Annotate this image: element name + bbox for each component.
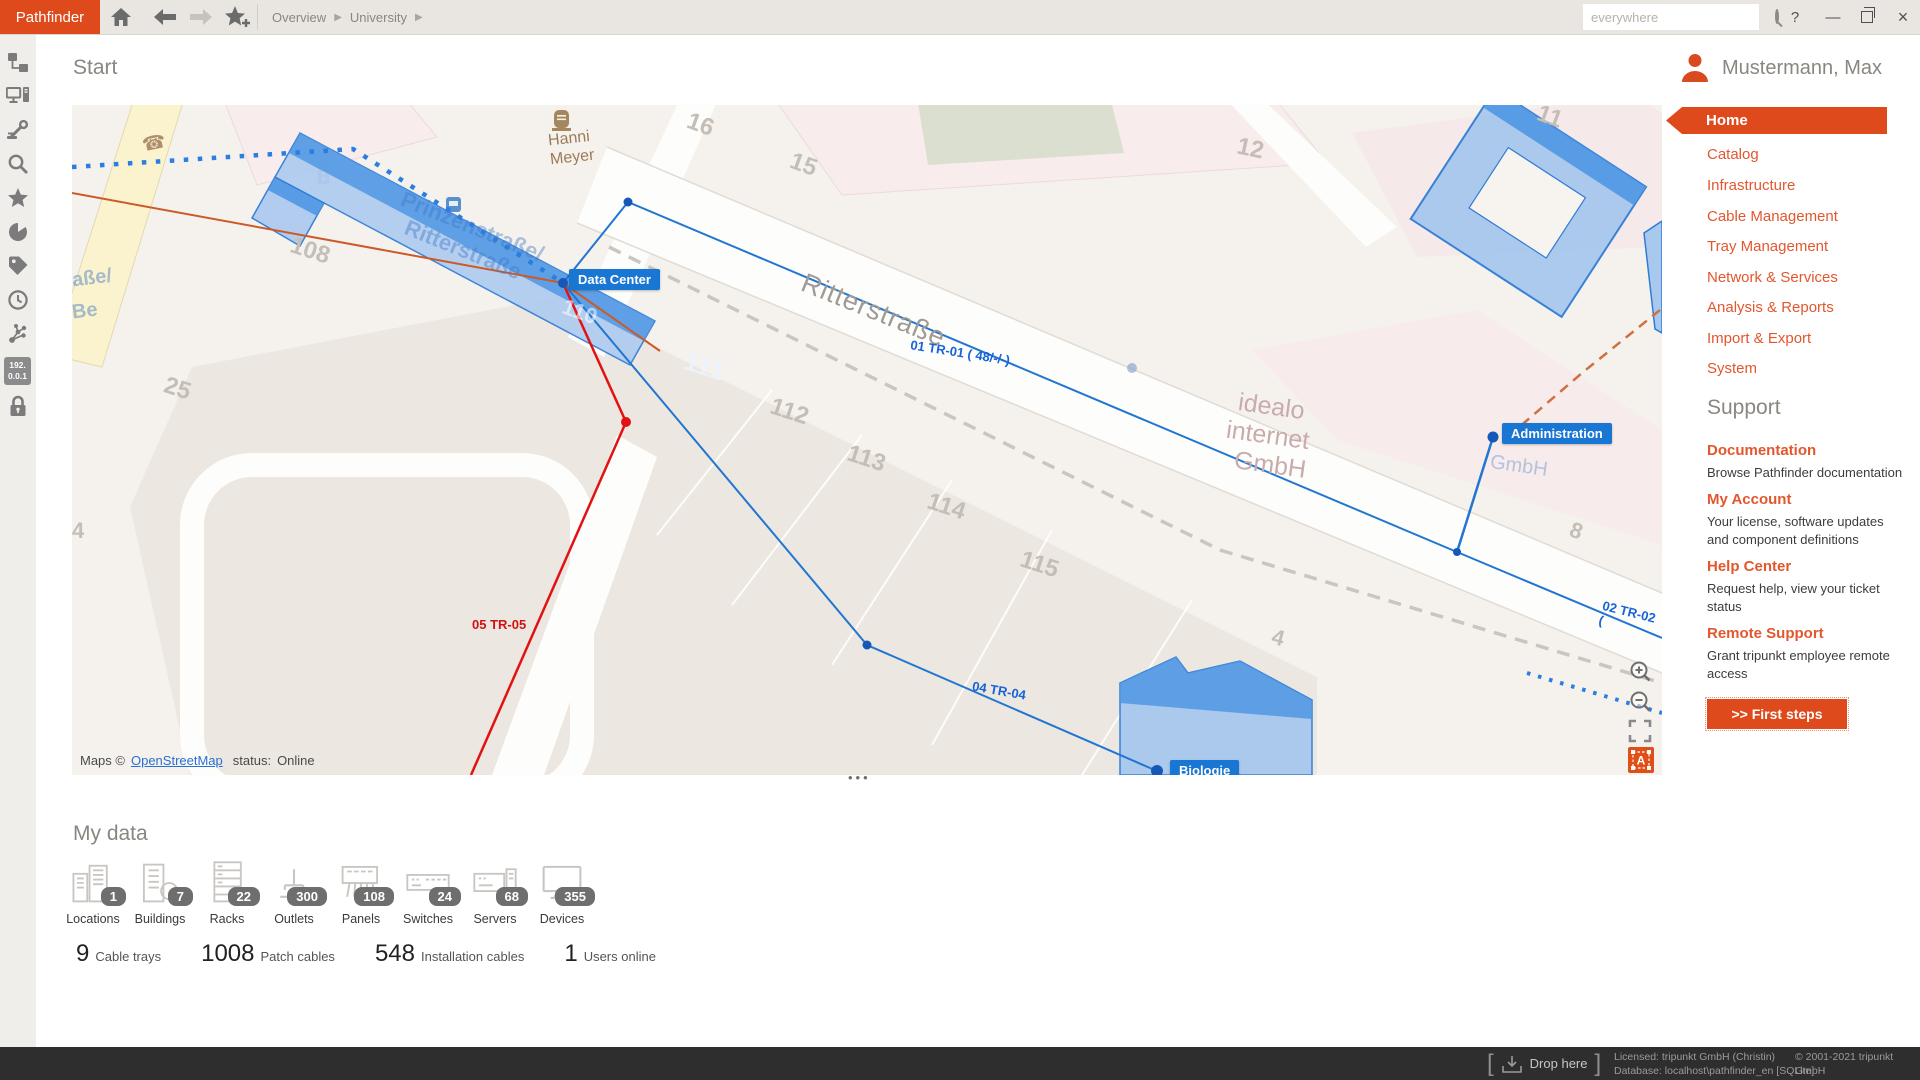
support-my-account[interactable]: My Account: [1707, 491, 1791, 508]
support-my-account-desc: Your license, software updates and compo…: [1707, 513, 1907, 549]
zoom-out-icon[interactable]: [1628, 689, 1656, 717]
status-value: Online: [277, 753, 315, 768]
menu-item-network-services[interactable]: Network & Services: [1707, 263, 1838, 293]
my-data-stats: 9Cable trays 1008Patch cables 548Install…: [76, 940, 656, 968]
menu-item-tray-management[interactable]: Tray Management: [1707, 232, 1828, 262]
my-data-title: My data: [73, 822, 148, 846]
support-remote-support[interactable]: Remote Support: [1707, 625, 1824, 642]
drop-here-label: Drop here: [1530, 1056, 1588, 1071]
support-documentation[interactable]: Documentation: [1707, 442, 1816, 459]
poi-dot: [1127, 363, 1137, 373]
poi-label-hanni-meyer: HanniMeyer: [547, 127, 595, 169]
count-badge: 355: [555, 887, 595, 906]
map-canvas[interactable]: ☎: [72, 105, 1662, 775]
app-logo[interactable]: Pathfinder: [0, 0, 100, 34]
my-data-switches[interactable]: 24 Switches: [395, 860, 461, 926]
my-data-outlets[interactable]: 300 Outlets: [261, 860, 327, 926]
add-favorite-icon[interactable]: [222, 5, 254, 29]
my-data-servers[interactable]: 68 Servers: [462, 860, 528, 926]
stat-users-online: 1Users online: [564, 940, 656, 968]
svg-text:A: A: [1637, 754, 1646, 768]
version-info: © 2001-2021 tripunkt GmbH v3.3.2.459 (64…: [1795, 1050, 1920, 1080]
tree-icon[interactable]: [0, 45, 36, 79]
menu-item-cable-management[interactable]: Cable Management: [1707, 202, 1838, 232]
stat-cable-trays: 9Cable trays: [76, 940, 161, 968]
tools-icon[interactable]: [0, 113, 36, 147]
openstreetmap-link[interactable]: OpenStreetMap: [131, 753, 223, 768]
poi-label-idealo: idealointernetGmbH: [1228, 388, 1316, 485]
bracket-right: ]: [1594, 1050, 1601, 1078]
forward-icon[interactable]: [188, 5, 214, 29]
status-label: status:: [233, 753, 271, 768]
license-info: Licensed: tripunkt GmbH (Christin) Datab…: [1614, 1050, 1814, 1078]
home-icon[interactable]: [108, 5, 134, 29]
breadcrumb: Overview ▶ University ▶: [272, 0, 423, 34]
download-icon: [1501, 1054, 1523, 1074]
breadcrumb-university[interactable]: University: [350, 10, 407, 25]
favorites-icon[interactable]: [0, 181, 36, 215]
search-input[interactable]: [1583, 6, 1775, 28]
ip-address-icon[interactable]: 192. 0.0.1: [4, 357, 31, 385]
drop-here-zone[interactable]: [ Drop here ]: [1487, 1047, 1601, 1080]
search-icon[interactable]: [1775, 9, 1779, 24]
licensed-line: Licensed: tripunkt GmbH (Christin): [1614, 1050, 1814, 1064]
map-view[interactable]: ☎: [72, 105, 1662, 775]
user-row[interactable]: Mustermann, Max: [1680, 52, 1882, 84]
support-help-center-desc: Request help, view your ticket status: [1707, 580, 1907, 616]
stat-patch-cables: 1008Patch cables: [201, 940, 335, 968]
map-badge-data-center[interactable]: Data Center: [569, 269, 660, 290]
map-badge-administration[interactable]: Administration: [1502, 423, 1612, 444]
street-label-edge2: Be: [72, 299, 99, 325]
stat-installation-cables: 548Installation cables: [375, 940, 524, 968]
menu-item-catalog[interactable]: Catalog: [1707, 140, 1759, 170]
my-data-racks[interactable]: 22 Racks: [194, 860, 260, 926]
help-button[interactable]: ?: [1780, 0, 1810, 34]
topology-icon[interactable]: [0, 317, 36, 351]
fullscreen-icon[interactable]: [1628, 719, 1656, 747]
toolbar-separator: [257, 4, 258, 30]
menu-item-home[interactable]: Home: [1666, 107, 1887, 134]
count-badge: 22: [228, 887, 260, 906]
zoom-in-icon[interactable]: [1628, 659, 1656, 687]
count-badge: 7: [168, 887, 193, 906]
global-search: [1583, 4, 1759, 30]
cable-label-tr05[interactable]: 05 TR-05: [472, 617, 526, 632]
status-bar: [ Drop here ] Licensed: tripunkt GmbH (C…: [0, 1047, 1920, 1080]
my-data-buildings[interactable]: 7 Buildings: [127, 860, 193, 926]
house-number: 12: [1234, 133, 1266, 166]
map-road-secondary: [72, 105, 184, 367]
breadcrumb-arrow-icon: ▶: [415, 12, 423, 23]
pie-chart-icon[interactable]: [0, 215, 36, 249]
map-attribution: Maps © OpenStreetMap status: Online: [80, 753, 315, 768]
count-badge: 108: [354, 887, 394, 906]
my-data-panels[interactable]: 108 Panels: [328, 860, 394, 926]
menu-item-system[interactable]: System: [1707, 354, 1757, 384]
memorial-icon: [552, 110, 571, 131]
app-window: Pathfinder Overview ▶ University ▶ ? — ×: [0, 0, 1920, 1080]
left-toolbar: 192. 0.0.1: [0, 35, 36, 1047]
my-data-locations[interactable]: 1 Locations: [60, 860, 126, 926]
support-title: Support: [1707, 396, 1781, 420]
menu-item-analysis-reports[interactable]: Analysis & Reports: [1707, 293, 1834, 323]
user-icon: [1680, 52, 1710, 84]
house-number: 4: [72, 518, 84, 544]
lock-icon[interactable]: [0, 389, 36, 423]
count-badge: 1: [101, 887, 126, 906]
breadcrumb-arrow-icon: ▶: [334, 12, 342, 23]
support-remote-support-desc: Grant tripunkt employee remote access: [1707, 647, 1907, 683]
count-badge: 300: [287, 887, 327, 906]
map-badge-biologie[interactable]: Biologie: [1170, 760, 1239, 775]
count-badge: 68: [496, 887, 528, 906]
my-data-devices[interactable]: 355 Devices: [529, 860, 595, 926]
close-icon[interactable]: ×: [1888, 0, 1918, 34]
panel-splitter-handle[interactable]: •••: [848, 770, 871, 785]
menu-item-import-export[interactable]: Import & Export: [1707, 324, 1811, 354]
cable-node-red[interactable]: [621, 417, 631, 427]
menu-item-infrastructure[interactable]: Infrastructure: [1707, 171, 1795, 201]
count-badge: 24: [429, 887, 461, 906]
database-line: Database: localhost\pathfinder_en [SQLit…: [1614, 1064, 1814, 1078]
support-help-center[interactable]: Help Center: [1707, 558, 1791, 575]
search-icon[interactable]: [0, 147, 36, 181]
copyright-line: © 2001-2021 tripunkt GmbH: [1795, 1050, 1920, 1078]
restore-icon[interactable]: [1852, 0, 1882, 34]
workstation-icon[interactable]: [0, 79, 36, 113]
bracket-left: [: [1487, 1050, 1494, 1078]
back-icon[interactable]: [152, 5, 178, 29]
tags-icon[interactable]: [0, 249, 36, 283]
top-bar: Pathfinder Overview ▶ University ▶ ? — ×: [0, 0, 1920, 35]
history-icon[interactable]: [0, 283, 36, 317]
minimize-icon[interactable]: —: [1818, 0, 1848, 34]
labels-toggle-icon[interactable]: A: [1628, 747, 1656, 775]
page-title: Start: [73, 56, 117, 80]
attribution-prefix: Maps ©: [80, 753, 125, 768]
support-documentation-desc: Browse Pathfinder documentation: [1707, 464, 1907, 482]
street-label-edge1: aße/: [72, 265, 113, 293]
first-steps-button[interactable]: >> First steps: [1707, 699, 1847, 729]
user-name: Mustermann, Max: [1722, 57, 1882, 80]
breadcrumb-overview[interactable]: Overview: [272, 10, 326, 25]
